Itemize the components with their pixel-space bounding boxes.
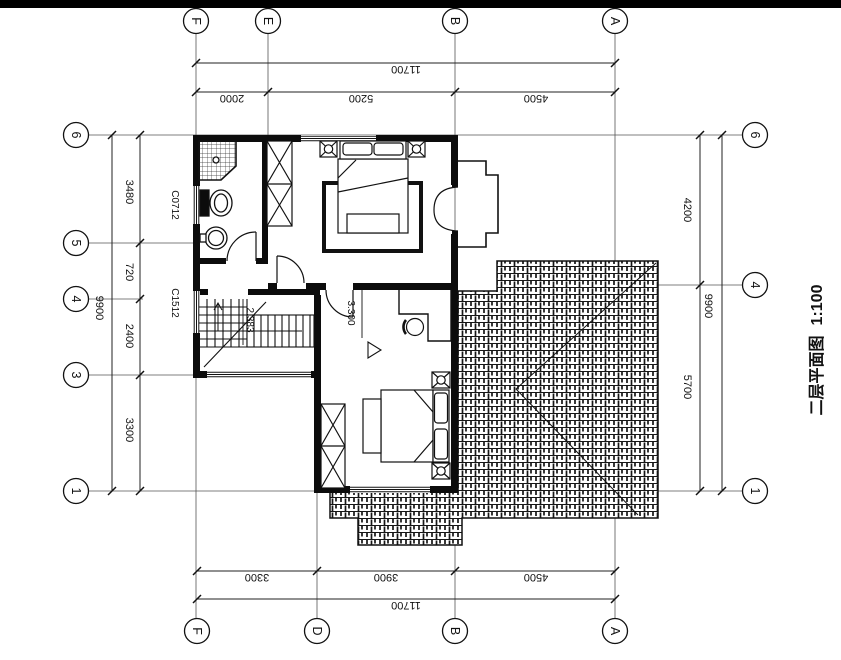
bed-master [338, 141, 408, 233]
nightstand-left [320, 141, 337, 157]
dim-bottom-seg2: 3900 [374, 571, 398, 583]
dim-top-seg2: 5200 [349, 92, 373, 104]
dim-top-seg3: 4500 [524, 92, 548, 104]
grid-top-F: F [189, 17, 203, 25]
balcony-bay [458, 161, 498, 247]
dim-bottom-seg1: 3300 [245, 571, 269, 583]
dim-left-seg4: 3300 [123, 418, 135, 442]
grid-bottom-F: F [190, 627, 204, 635]
grid-right-1: 1 [748, 488, 762, 495]
grid-left-1: 1 [69, 488, 83, 495]
window-C1512 [193, 287, 200, 337]
stair-landing-treads [199, 299, 247, 347]
dim-left-seg2: 720 [123, 263, 135, 281]
desk-l-shaped [399, 290, 451, 341]
grid-top-E: E [261, 17, 275, 25]
level-triangle [368, 342, 381, 358]
title-text: 二层平面图 [808, 335, 826, 415]
window-tag-C0712: C0712 [169, 190, 180, 220]
dim-left-seg3: 2400 [123, 324, 135, 348]
staircase [199, 299, 314, 367]
floor-plan-page: 11700 2000 5200 4500 3300 3900 4500 1170… [0, 0, 841, 660]
level-stair-label: 2.383 [244, 307, 255, 332]
window-stair-south [203, 371, 315, 378]
bathroom-door [227, 232, 256, 261]
bed-bedroom2 [363, 390, 449, 462]
dim-left-total: 9900 [93, 296, 105, 320]
grid-left-3: 3 [69, 372, 83, 379]
grid-bottom-A: A [608, 627, 622, 636]
nightstand-top [432, 372, 450, 388]
grid-bottom-B: B [448, 627, 462, 635]
dim-right-seg2: 5700 [681, 375, 693, 399]
wardrobe-master [267, 141, 292, 226]
dim-bottom-seg3: 4500 [524, 571, 548, 583]
drawing-title: 二层平面图1:100 [808, 284, 826, 415]
dim-right-total: 9900 [702, 294, 714, 318]
svg-text:二层平面图1:100: 二层平面图1:100 [808, 284, 826, 415]
floor-plan-drawing: 11700 2000 5200 4500 3300 3900 4500 1170… [0, 0, 841, 660]
window-tags: C0712 C1512 [169, 190, 180, 318]
title-scale: 1:100 [809, 284, 826, 325]
grid-left-5: 5 [69, 240, 83, 247]
grid-top-B: B [448, 17, 462, 25]
grid-bottom-D: D [310, 626, 324, 635]
nightstand-right [408, 141, 425, 157]
master-bedroom [267, 141, 425, 251]
sink [200, 227, 227, 249]
window-C0712 [193, 182, 200, 228]
balcony-double-door [434, 182, 458, 236]
bedroom2 [321, 290, 451, 488]
top-border-bar [0, 0, 841, 8]
grid-right-4: 4 [748, 282, 762, 289]
toilet [200, 190, 232, 216]
level-floor-label: 3.300 [345, 300, 356, 325]
desk-chair [403, 319, 423, 336]
dim-top-total: 11700 [391, 63, 421, 75]
master-bedroom-door [277, 256, 304, 283]
dim-right-seg1: 4200 [681, 198, 693, 222]
dim-bottom-total: 11700 [391, 599, 421, 611]
grid-left-4: 4 [69, 296, 83, 303]
nightstand-bottom [432, 463, 450, 479]
window-bedroom2-south [344, 486, 436, 493]
dim-top-seg1: 2000 [220, 92, 244, 104]
dim-left-seg1: 3480 [123, 180, 135, 204]
grid-right-6: 6 [748, 132, 762, 139]
grid-left-6: 6 [69, 132, 83, 139]
grid-top-A: A [608, 17, 622, 26]
window-tag-C1512: C1512 [169, 288, 180, 318]
wardrobe-bedroom2 [321, 404, 345, 488]
shower [199, 141, 236, 180]
bathroom [199, 141, 236, 249]
